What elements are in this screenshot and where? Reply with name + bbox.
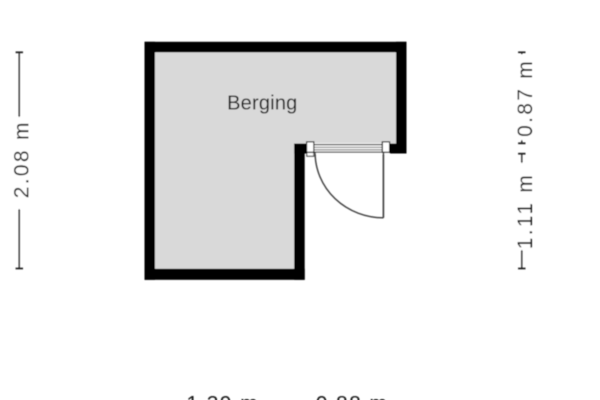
svg-text:0.88 m: 0.88 m [316,392,389,400]
svg-text:2.08 m: 2.08 m [11,120,34,198]
svg-text:1.11 m: 1.11 m [514,173,537,249]
svg-text:Berging: Berging [227,92,297,114]
svg-text:1.39 m: 1.39 m [186,392,259,400]
svg-text:0.87 m: 0.87 m [514,59,537,137]
